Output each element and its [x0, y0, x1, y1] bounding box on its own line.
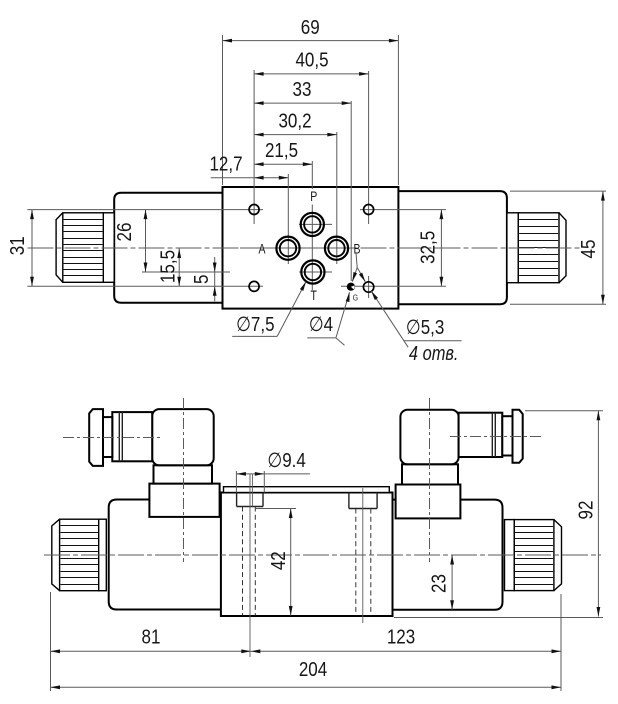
svg-text:30,2: 30,2: [278, 109, 311, 132]
svg-text:∅4: ∅4: [309, 313, 333, 336]
svg-text:21,5: 21,5: [265, 138, 298, 161]
svg-text:69: 69: [301, 16, 320, 39]
svg-text:B: B: [353, 241, 360, 257]
svg-text:∅9.4: ∅9.4: [267, 449, 305, 472]
svg-text:26: 26: [113, 223, 136, 242]
svg-text:123: 123: [387, 625, 415, 648]
svg-text:31: 31: [6, 236, 29, 255]
svg-text:92: 92: [574, 501, 597, 520]
svg-text:5: 5: [190, 275, 213, 284]
svg-text:204: 204: [299, 658, 327, 681]
svg-text:∅7,5: ∅7,5: [236, 313, 274, 336]
svg-text:P: P: [310, 189, 317, 205]
svg-text:42: 42: [266, 551, 289, 570]
svg-text:12,7: 12,7: [209, 152, 242, 175]
svg-text:23: 23: [427, 574, 450, 593]
svg-text:T: T: [310, 288, 317, 304]
svg-text:81: 81: [142, 625, 161, 648]
svg-text:45: 45: [577, 240, 600, 259]
svg-text:15,5: 15,5: [156, 250, 179, 283]
svg-text:40,5: 40,5: [295, 48, 328, 71]
svg-text:G: G: [353, 293, 358, 303]
svg-text:32,5: 32,5: [416, 231, 439, 264]
svg-text:A: A: [258, 241, 266, 257]
svg-text:4 отв.: 4 отв.: [409, 341, 459, 364]
svg-text:∅5,3: ∅5,3: [406, 316, 444, 339]
svg-text:33: 33: [293, 77, 312, 100]
